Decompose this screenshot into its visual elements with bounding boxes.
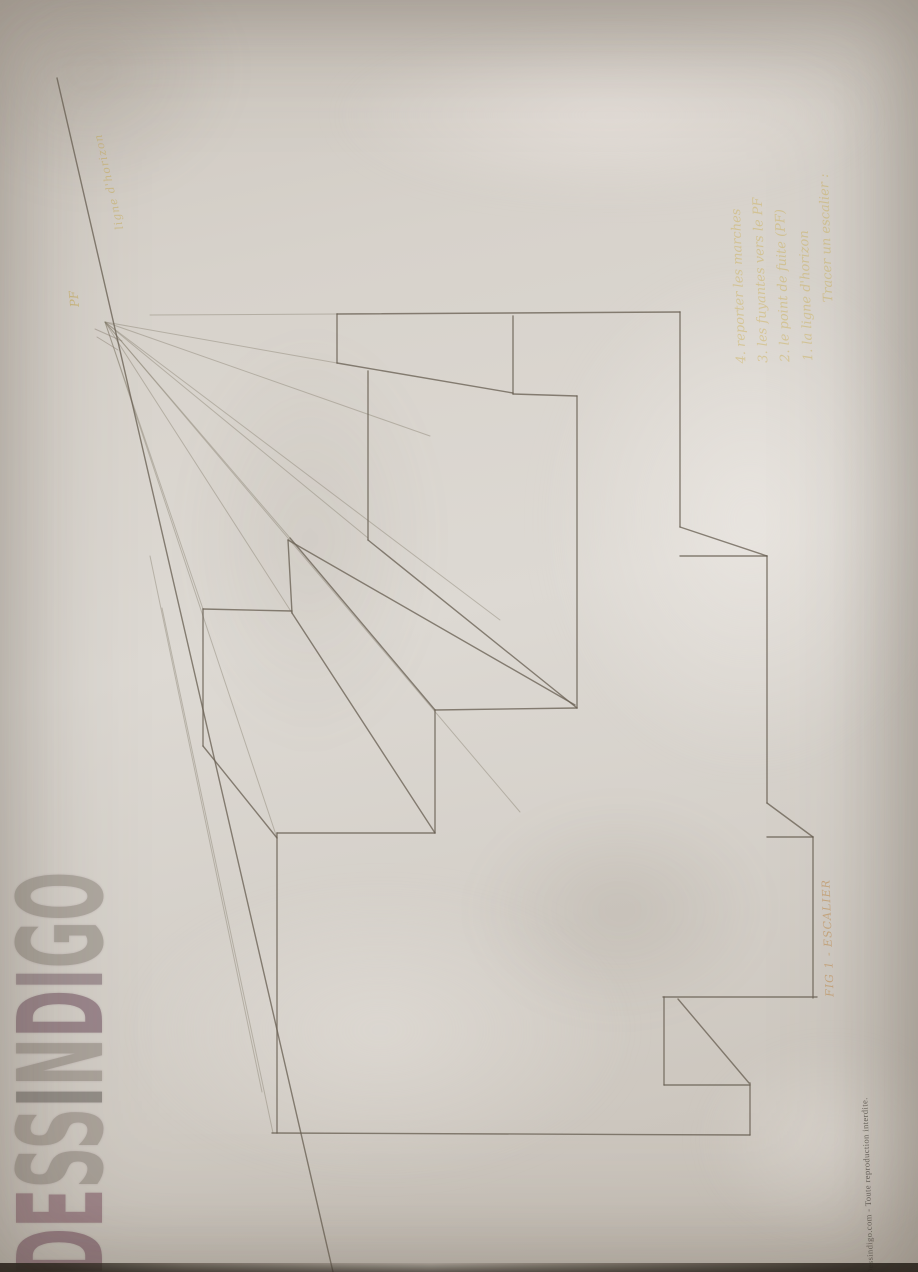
pencil-segment bbox=[513, 394, 577, 396]
watermark-letter: N bbox=[0, 1038, 130, 1086]
watermark-letter: S bbox=[0, 1149, 130, 1188]
construction-tick bbox=[97, 337, 118, 350]
construction-ray bbox=[105, 322, 520, 812]
watermark-letter: G bbox=[0, 921, 130, 968]
pencil-segment bbox=[288, 540, 292, 613]
pencil-segment bbox=[288, 540, 575, 705]
photo-bottom-edge bbox=[0, 1263, 918, 1272]
watermark-letter: E bbox=[0, 1189, 130, 1228]
vanishing-point-label: PF bbox=[66, 290, 82, 308]
construction-ray bbox=[162, 608, 273, 1133]
construction-ray bbox=[105, 322, 292, 613]
handwritten-notes: Tracer un escalier :1. la ligne d'horizo… bbox=[640, 77, 918, 366]
photo-of-drawing: ligne d'horizon PF Tracer un escalier :1… bbox=[0, 0, 918, 1272]
watermark-letter: S bbox=[0, 1108, 130, 1150]
pencil-segment bbox=[337, 312, 680, 314]
construction-ray bbox=[105, 322, 368, 538]
dessindigo-watermark: DESSINDIGO bbox=[2, 872, 120, 1272]
pencil-segment bbox=[368, 540, 577, 708]
pencil-segment bbox=[292, 613, 435, 833]
pencil-segment bbox=[435, 708, 577, 710]
pencil-segment bbox=[203, 609, 292, 611]
pencil-segment bbox=[272, 1133, 750, 1135]
construction-ray bbox=[150, 314, 337, 315]
pencil-segment bbox=[680, 527, 767, 556]
watermark-letter: O bbox=[0, 872, 130, 921]
construction-ray bbox=[150, 556, 262, 1092]
construction-ray bbox=[105, 322, 337, 363]
watermark-letter: D bbox=[0, 990, 130, 1038]
watermark-letter: I bbox=[0, 968, 130, 990]
watermark-letter: I bbox=[0, 1086, 130, 1108]
construction-ray bbox=[105, 322, 500, 620]
pencil-segment bbox=[678, 999, 749, 1083]
pencil-segment bbox=[203, 746, 277, 838]
pencil-segment bbox=[767, 803, 813, 837]
pencil-segment bbox=[290, 538, 435, 710]
pencil-segment bbox=[337, 363, 513, 393]
